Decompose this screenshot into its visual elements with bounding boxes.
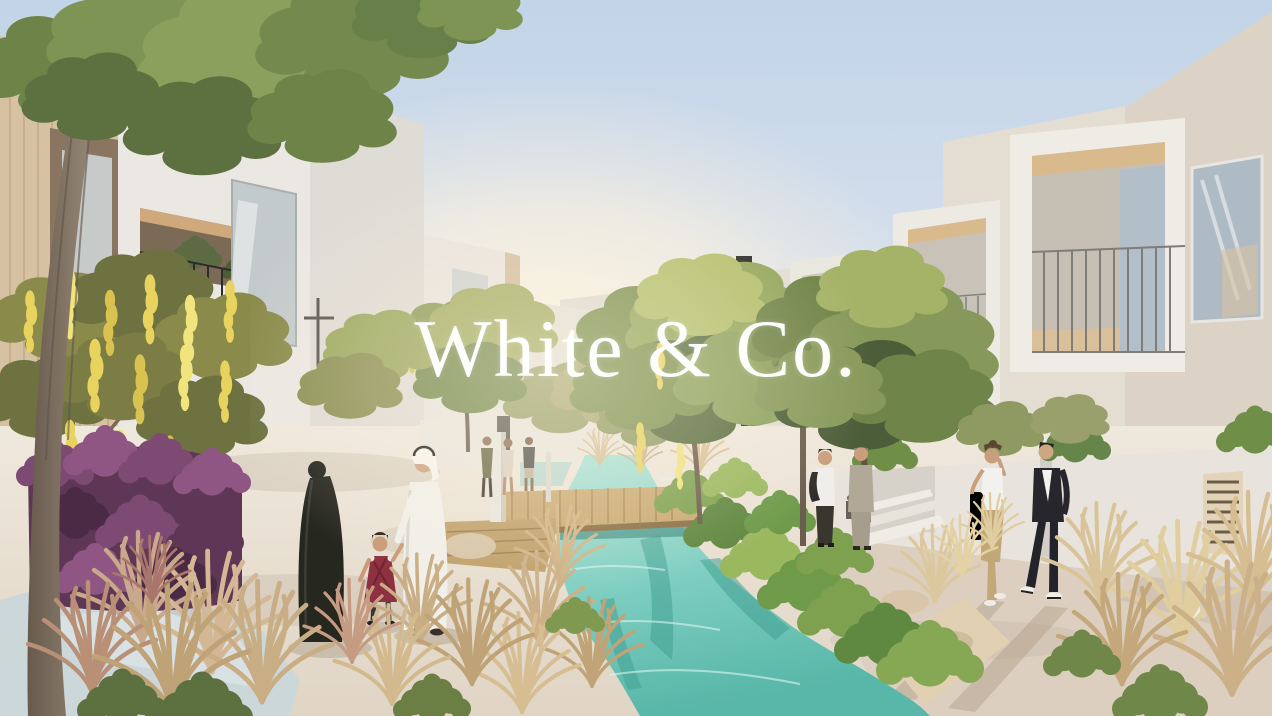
- sun-haze: [250, 150, 900, 600]
- scene-canvas: [0, 0, 1272, 716]
- facade-window-near: [1192, 156, 1262, 322]
- balcony-frame-near: [1010, 118, 1185, 372]
- rendering-photo: White & Co.: [0, 0, 1272, 716]
